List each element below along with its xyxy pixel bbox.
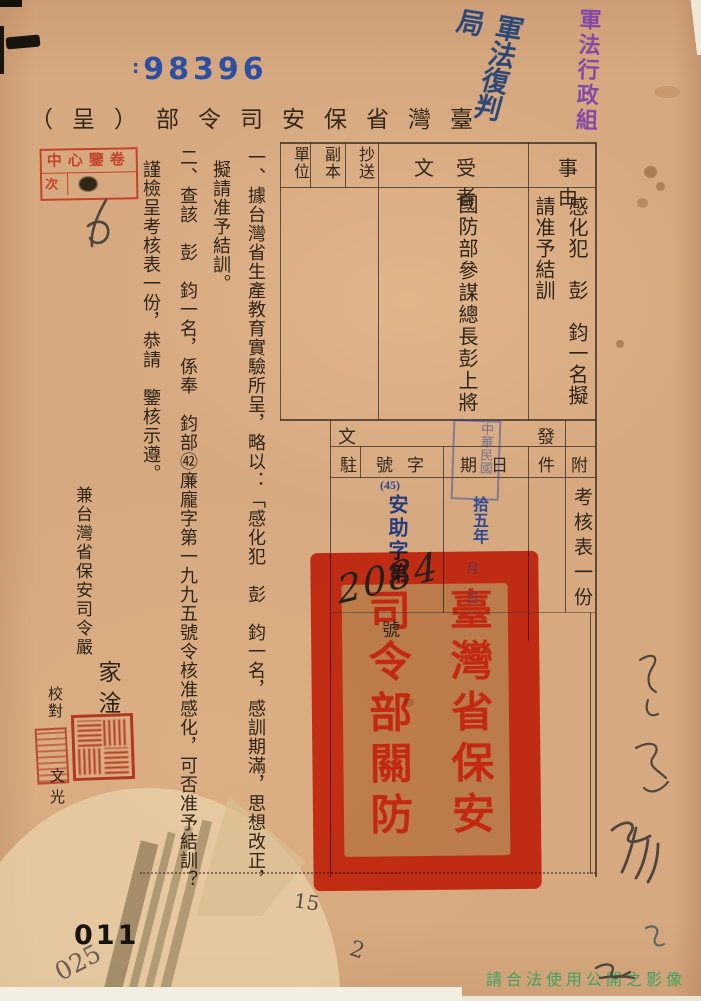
body-paragraph-1: 一、據台灣省生產教育實驗所呈，略以：「感化犯 彭 鈞一名，感訓期滿，思想改正，: [240, 148, 272, 896]
pencil-loop-mark: [88, 200, 108, 246]
duplicate-label: 副本: [317, 146, 343, 188]
paper-stain: [656, 182, 665, 191]
date-stamp-text: 中華民國: [475, 422, 495, 493]
purple-annotation: 軍法行政組: [555, 7, 609, 400]
paper-corner-light: [688, 0, 701, 55]
archive-stamp-row2: 次: [42, 173, 68, 195]
dispatch-number-prefix: (45): [380, 478, 400, 493]
paper-stain: [654, 86, 680, 98]
attachment-label: 附: [571, 451, 589, 476]
body-closing: 謹檢呈考核表一份，恭請 鑒核示遵。: [138, 160, 164, 490]
pencil-mid-number: 15: [292, 888, 321, 915]
dispatch-label: 發文: [338, 423, 556, 449]
date-stamp-frame: 中華民國: [451, 419, 502, 501]
archive-stamp-row1: 中心鑒卷: [42, 149, 136, 174]
proofreader-label: 校對: [44, 686, 65, 730]
archive-stamp: 中心鑒卷 次: [40, 147, 139, 201]
paper-stain: [616, 340, 624, 348]
recipient-value: 國防部參謀總長彭上將: [452, 194, 481, 426]
dispatch-number-suffix: 號: [382, 616, 400, 642]
document-scan: :98396 軍法行政組 軍法復判局 中心鑒卷 次 臺灣省保安司令部（呈） 事由…: [0, 0, 701, 1001]
serial-number: :98396: [132, 52, 268, 87]
seal-column-right: 臺灣省保安: [426, 587, 510, 852]
attachment-sub-label: 件: [538, 451, 556, 476]
unit-label: 單位: [286, 146, 312, 188]
serial-prefix: :: [132, 57, 143, 78]
pencil-signature-scribble: [640, 656, 658, 715]
date-value: 拾五年: [466, 496, 490, 556]
body-paragraph-2: 二、查該 彭 鈞一名，係奉 鈞部㊷廉龐字第一九九五號令核准感化，可否准予結訓？: [172, 148, 204, 896]
copy-to-label: 抄送: [351, 146, 377, 188]
archive-stamp-handwritten-mark: [78, 176, 98, 192]
paper-edge-mark: [0, 0, 22, 7]
paper-stain: [644, 166, 657, 178]
attachment-value: 考核表一份: [568, 487, 595, 639]
station-label: 駐: [334, 451, 358, 476]
commander-personal-seal: [71, 713, 135, 781]
paper-bottom-strip: [462, 996, 701, 1001]
paper-bottom-strip: [0, 987, 462, 1001]
pencil-signature-scribble: [646, 926, 664, 945]
pencil-signature-scribble: [612, 823, 658, 882]
pencil-check-mark: 2: [346, 936, 367, 964]
date-faint-day: 日: [466, 588, 479, 607]
number-label: 字號: [366, 451, 438, 476]
body-paragraph-1-continued: 擬請准予結訓。: [208, 160, 234, 330]
paper-edge-mark: [6, 35, 41, 50]
serial-value: 98396: [143, 52, 267, 87]
proofreader-seal: [35, 727, 70, 785]
pencil-signature-scribble: [636, 744, 668, 792]
paper-edge-mark: [0, 26, 4, 74]
date-faint-month: 月: [466, 558, 479, 577]
paper-stain: [637, 198, 648, 208]
official-seal-text: 臺灣省保安 司令部關防: [342, 587, 510, 853]
commander-title-line: 兼台灣省保安司令嚴: [70, 486, 95, 668]
recipient-label: 受文者: [386, 152, 498, 210]
copyright-note: 請合法使用公開之影像: [486, 966, 686, 990]
